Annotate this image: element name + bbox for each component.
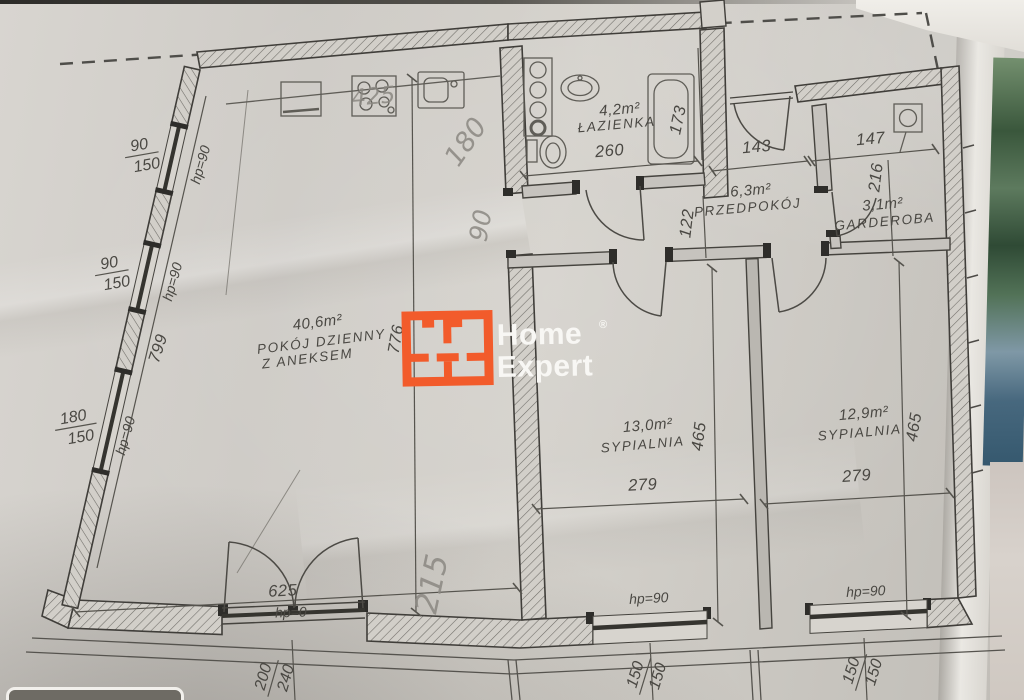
- bedroom1-area: 13,0m²: [622, 415, 673, 436]
- living-area: 40,6m²: [292, 311, 344, 334]
- appliance-box: [281, 82, 321, 116]
- dim-living-width: 625: [268, 581, 298, 601]
- bedroom2-name: SYPIALNIA: [817, 421, 902, 443]
- bath-bottom-left: [522, 182, 576, 198]
- wall-bottom-d: [927, 598, 972, 628]
- bedroom2-door: [772, 258, 826, 312]
- logo-registered: ®: [599, 319, 607, 331]
- hp-left2: hp=90: [159, 260, 185, 302]
- toilet-icon: [527, 136, 566, 168]
- handwritten-425: 425: [350, 82, 396, 112]
- wall-top-kitchen: [197, 24, 508, 68]
- dim-bathroom-depth: 173: [666, 104, 690, 136]
- svg-text:90: 90: [99, 254, 120, 274]
- hp-bottom1: hp=90: [629, 589, 669, 607]
- svg-text:150: 150: [624, 659, 648, 690]
- bedroom1-name: SYPIALNIA: [600, 433, 685, 455]
- handwritten-90: 90: [464, 207, 498, 243]
- kitchen-sink-icon: [418, 72, 464, 108]
- hp-balcony: hp=0: [275, 603, 307, 620]
- hp-left1: hp=90: [187, 143, 213, 185]
- washing-machine-icon: [524, 58, 552, 136]
- bedroom-divider: [746, 259, 772, 630]
- wardrobe-vent-icon: [894, 104, 922, 152]
- dim-bedroom1-depth: 465: [688, 421, 709, 452]
- handwritten-notes: 425 180 90 215: [350, 82, 497, 616]
- svg-text:150: 150: [102, 273, 131, 294]
- corridor-wall-c: [824, 238, 950, 255]
- homeexpert-logo: Home ® Expert: [406, 312, 607, 384]
- svg-text:200: 200: [252, 661, 276, 692]
- dim-wardrobe-width: 147: [855, 129, 886, 149]
- balcony-double-door: [224, 538, 363, 612]
- svg-text:150: 150: [132, 155, 161, 176]
- bathroom-name: ŁAZIENKA: [577, 114, 656, 136]
- bath-sink-icon: [561, 75, 599, 101]
- bathroom-door: [586, 186, 644, 240]
- svg-text:150: 150: [862, 657, 886, 688]
- wardrobe-name: GARDEROBA: [834, 210, 936, 234]
- dim-left-wall: 799: [145, 332, 171, 365]
- floorplan-photo: 40,6m² POKÓJ DZIENNY Z ANEKSEM 4,2m² ŁAZ…: [0, 0, 1024, 700]
- bedroom1-door: [613, 262, 666, 316]
- construction-lines: [226, 90, 300, 573]
- dim-bathroom-width: 260: [593, 141, 625, 162]
- floorplan-drawing: 40,6m² POKÓJ DZIENNY Z ANEKSEM 4,2m² ŁAZ…: [0, 0, 1024, 700]
- handwritten-180: 180: [439, 112, 494, 172]
- wall-top-bathroom: [508, 12, 706, 40]
- dim-corridor-depth: 122: [676, 208, 697, 239]
- fraction-left3: 180 150: [52, 405, 100, 450]
- dim-hall-width: 143: [741, 137, 772, 157]
- wardrobe-wall-upper: [812, 104, 832, 192]
- wall-top-right: [795, 68, 944, 102]
- dim-bedroom2-depth: 465: [903, 411, 926, 443]
- fraction-left2: 90 150: [92, 252, 132, 295]
- door-posts: [218, 176, 931, 624]
- hallway-name: PRZEDPOKÓJ: [693, 195, 801, 219]
- entrance-threshold: [730, 92, 793, 104]
- dim-wardrobe-depth: 216: [865, 162, 887, 194]
- svg-text:90: 90: [129, 136, 150, 156]
- wall-living-right: [508, 254, 546, 620]
- wall-bottom-b: [367, 613, 593, 648]
- dim-bedroom1-width: 279: [627, 475, 658, 495]
- wardrobe-area: 3,1m²: [862, 194, 905, 215]
- bath-bottom-right: [640, 173, 705, 189]
- chimney-stub: [700, 0, 726, 28]
- logo-word-expert: Expert: [497, 349, 594, 384]
- wardrobe-wall-lower: [830, 236, 841, 249]
- svg-text:150: 150: [840, 655, 864, 686]
- bedroom2-area: 12,9m²: [838, 403, 889, 424]
- fraction-left1: 90 150: [122, 134, 162, 177]
- homeexpert-logo-icon: [406, 312, 489, 382]
- logo-word-home: Home: [497, 318, 583, 352]
- svg-text:150: 150: [646, 661, 670, 692]
- fraction-bottom1: 150 150: [622, 653, 670, 700]
- dim-bedroom2-width: 279: [841, 466, 872, 486]
- hp-bottom2: hp=90: [846, 582, 886, 600]
- svg-text:150: 150: [66, 427, 95, 448]
